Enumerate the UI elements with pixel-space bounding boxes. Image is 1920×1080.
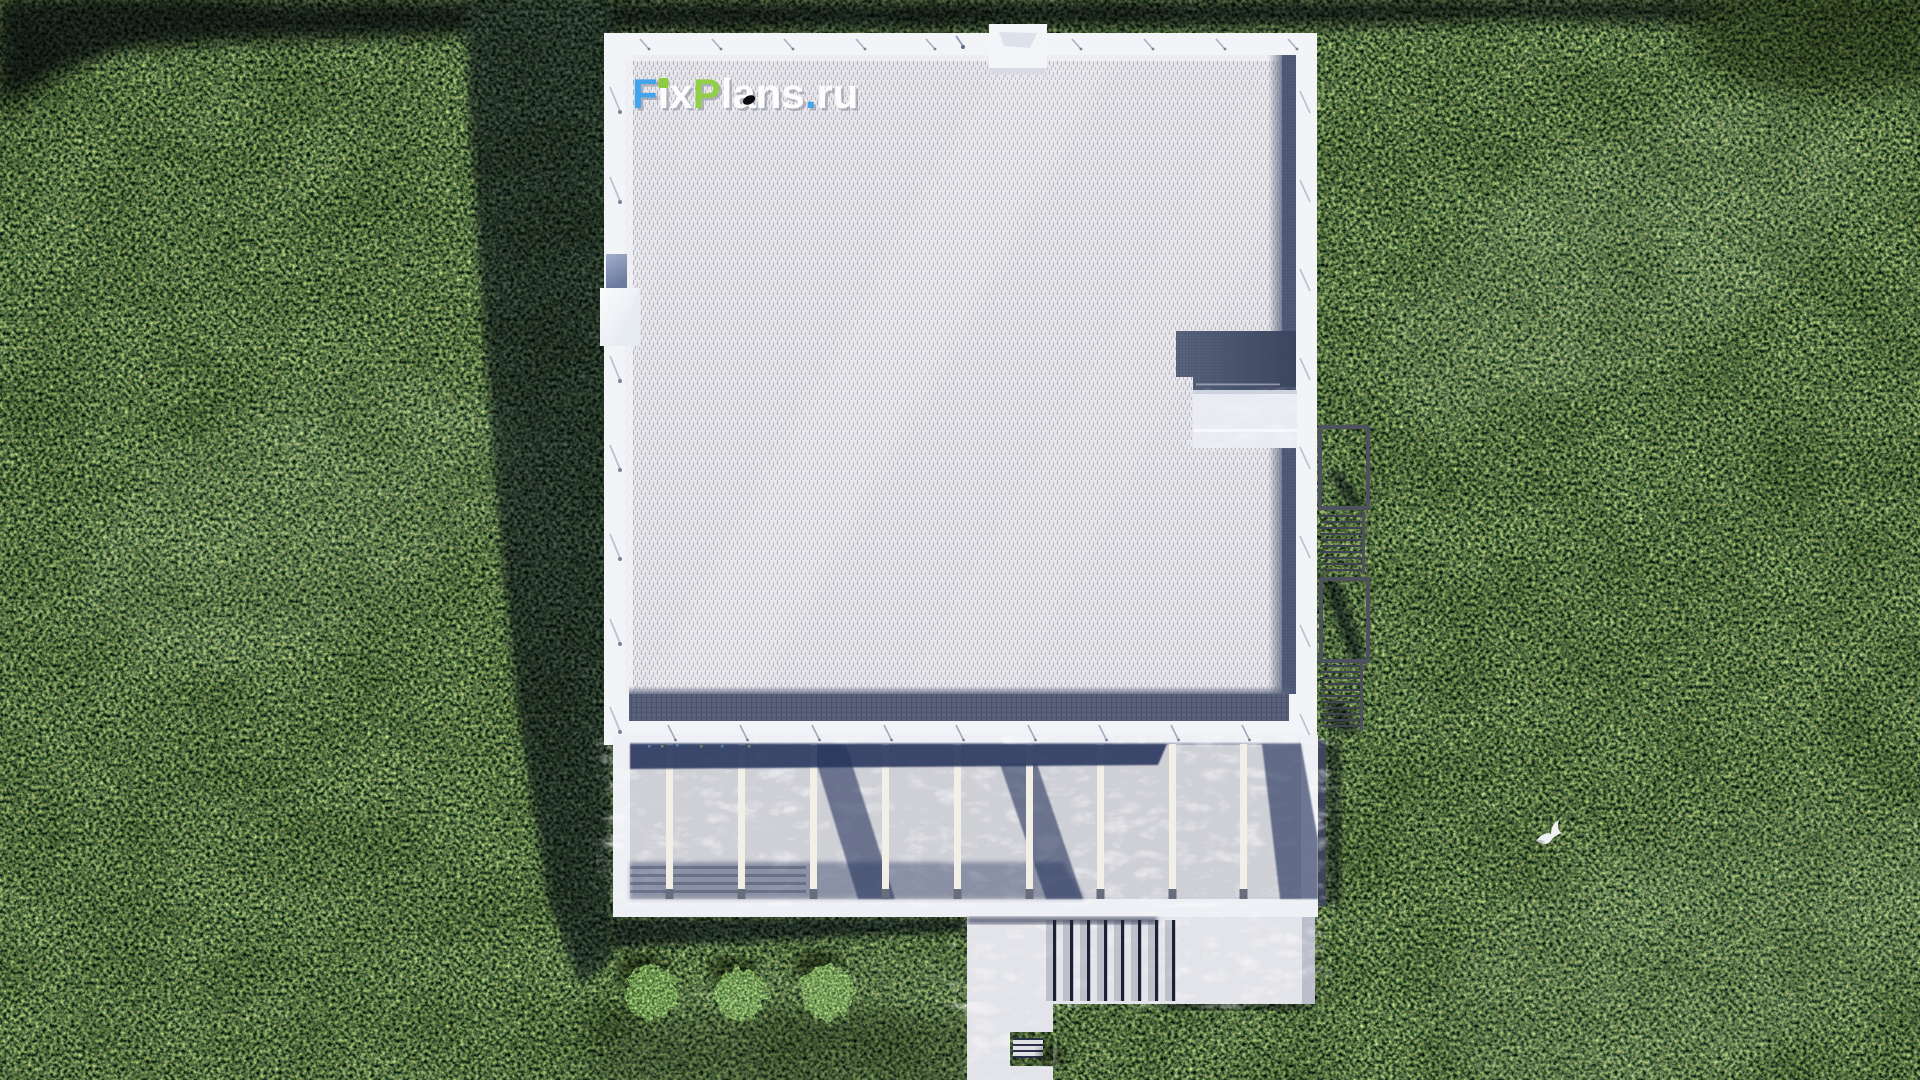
svg-text:FixPlans.ru: FixPlans.ru (632, 70, 858, 117)
